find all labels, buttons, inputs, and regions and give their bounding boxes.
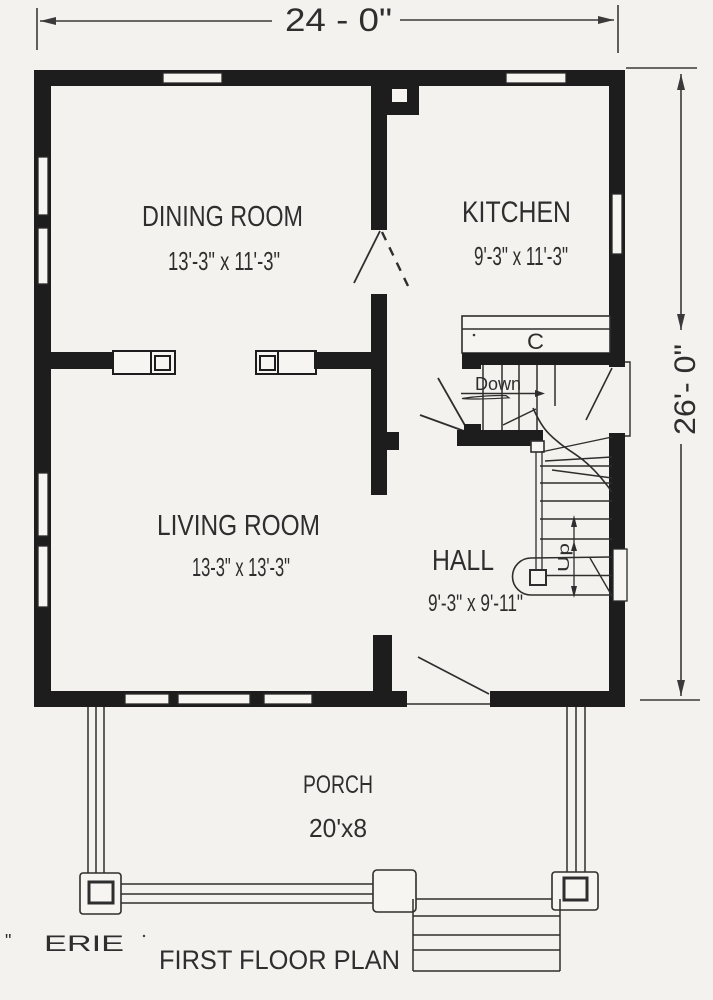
svg-text:FIRST FLOOR PLAN: FIRST FLOOR PLAN [159, 945, 400, 975]
svg-text:13'-3" x 11'-3": 13'-3" x 11'-3" [168, 246, 280, 276]
svg-text:9'-3" x 11'-3": 9'-3" x 11'-3" [474, 241, 568, 271]
svg-text:PORCH: PORCH [303, 771, 373, 799]
svg-text:KITCHEN: KITCHEN [462, 196, 571, 229]
svg-text:C: C [527, 329, 544, 354]
svg-text:26'- 0": 26'- 0" [669, 344, 702, 435]
svg-text:Up: Up [556, 543, 573, 572]
svg-text:Down: Down [475, 374, 521, 394]
svg-text:20'x8: 20'x8 [309, 813, 367, 843]
svg-text:": " [5, 931, 11, 951]
svg-text:ERIE: ERIE [44, 931, 124, 956]
svg-text:DINING ROOM: DINING ROOM [142, 201, 303, 233]
svg-text:HALL: HALL [432, 545, 494, 577]
svg-text:LIVING ROOM: LIVING ROOM [157, 510, 320, 542]
svg-text:9'-3" x 9'-11": 9'-3" x 9'-11" [428, 590, 523, 617]
svg-text:13-3" x 13'-3": 13-3" x 13'-3" [192, 552, 290, 582]
svg-text:24 - 0": 24 - 0" [285, 2, 392, 38]
